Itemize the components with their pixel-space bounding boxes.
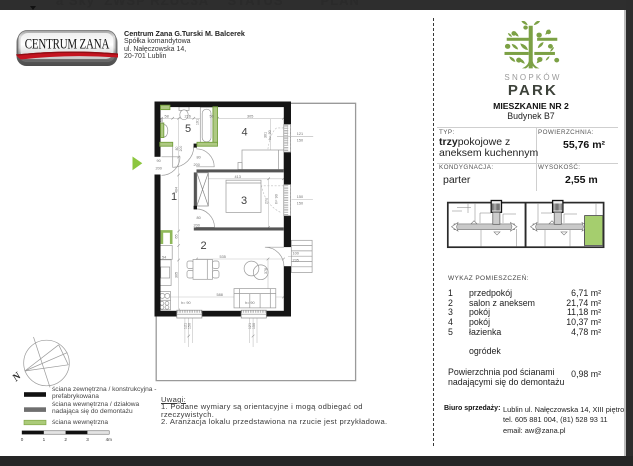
svg-text:150: 150 xyxy=(297,201,303,205)
svg-text:58: 58 xyxy=(165,114,169,118)
svg-text:305: 305 xyxy=(175,272,179,278)
svg-text:N: N xyxy=(10,370,24,384)
svg-text:3: 3 xyxy=(241,195,247,207)
svg-text:150: 150 xyxy=(297,195,303,199)
svg-text:216: 216 xyxy=(185,114,191,118)
svg-text:200: 200 xyxy=(194,224,200,228)
svg-text:80: 80 xyxy=(197,156,201,160)
svg-text:535: 535 xyxy=(220,255,226,259)
svg-text:2: 2 xyxy=(64,437,67,442)
svg-text:5: 5 xyxy=(185,123,191,135)
svg-text:150: 150 xyxy=(297,139,303,143)
svg-text:100: 100 xyxy=(293,252,299,256)
svg-text:80: 80 xyxy=(197,216,201,220)
svg-text:404: 404 xyxy=(175,187,179,193)
svg-text:0: 0 xyxy=(21,437,24,442)
svg-text:376: 376 xyxy=(264,268,268,274)
svg-text:4m: 4m xyxy=(106,437,113,442)
svg-text:305: 305 xyxy=(247,114,253,118)
svg-text:h= 90: h= 90 xyxy=(268,130,272,140)
svg-text:1: 1 xyxy=(43,437,46,442)
svg-text:301: 301 xyxy=(263,132,267,138)
svg-text:235: 235 xyxy=(293,259,299,263)
svg-text:200: 200 xyxy=(194,163,200,167)
svg-text:50: 50 xyxy=(210,114,214,118)
svg-text:150: 150 xyxy=(160,118,164,124)
svg-text:191: 191 xyxy=(196,119,200,125)
svg-text:h= 90: h= 90 xyxy=(245,301,255,305)
svg-text:121: 121 xyxy=(297,132,303,136)
svg-text:271: 271 xyxy=(265,198,269,204)
svg-text:54: 54 xyxy=(162,256,166,260)
svg-text:2: 2 xyxy=(201,240,207,252)
svg-text:200: 200 xyxy=(156,167,162,171)
svg-text:3: 3 xyxy=(86,437,89,442)
svg-text:413: 413 xyxy=(235,175,241,179)
svg-text:65: 65 xyxy=(175,234,179,238)
svg-text:90: 90 xyxy=(157,159,161,163)
svg-text:4: 4 xyxy=(242,127,248,139)
svg-text:150: 150 xyxy=(188,323,192,329)
svg-text:200: 200 xyxy=(179,146,183,152)
svg-text:CENTRUM ZANA: CENTRUM ZANA xyxy=(25,35,110,52)
svg-text:h= 90: h= 90 xyxy=(181,301,191,305)
svg-text:588: 588 xyxy=(217,293,223,297)
svg-text:h= 90: h= 90 xyxy=(274,194,278,204)
svg-text:150: 150 xyxy=(252,323,256,329)
